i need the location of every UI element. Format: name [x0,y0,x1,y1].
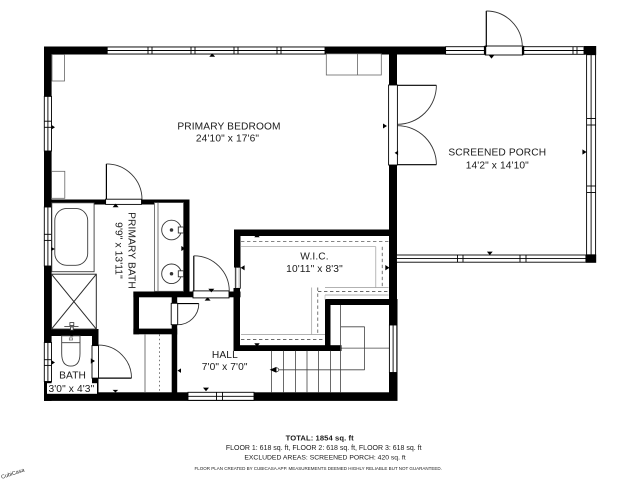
svg-text:PRIMARY BATH: PRIMARY BATH [125,212,136,289]
svg-text:FLOOR 1: 618 sq. ft, FLOOR 2:: FLOOR 1: 618 sq. ft, FLOOR 2: 618 sq. ft… [226,445,422,452]
svg-text:TOTAL: 1854 sq. ft: TOTAL: 1854 sq. ft [286,434,355,443]
svg-text:PRIMARY BEDROOM: PRIMARY BEDROOM [177,121,280,132]
svg-text:EXCLUDED AREAS: SCREENED PORCH: EXCLUDED AREAS: SCREENED PORCH: 420 sq. … [244,454,405,461]
svg-text:SCREENED PORCH: SCREENED PORCH [448,148,546,159]
svg-text:BATH: BATH [59,371,86,382]
svg-text:3'0" x 4'3": 3'0" x 4'3" [48,384,94,395]
svg-text:10'11" x 8'3": 10'11" x 8'3" [286,264,343,275]
svg-text:W.I.C.: W.I.C. [300,251,328,262]
svg-text:HALL: HALL [212,350,238,361]
svg-text:FLOOR PLAN CREATED BY CUBICASA: FLOOR PLAN CREATED BY CUBICASA APP. MEAS… [194,466,441,471]
svg-text:14'2" x 14'10": 14'2" x 14'10" [466,161,529,172]
svg-text:7'0" x 7'0": 7'0" x 7'0" [202,362,248,373]
svg-text:24'10" x 17'6": 24'10" x 17'6" [196,133,259,144]
svg-text:9'9" x 13'11": 9'9" x 13'11" [113,222,124,279]
